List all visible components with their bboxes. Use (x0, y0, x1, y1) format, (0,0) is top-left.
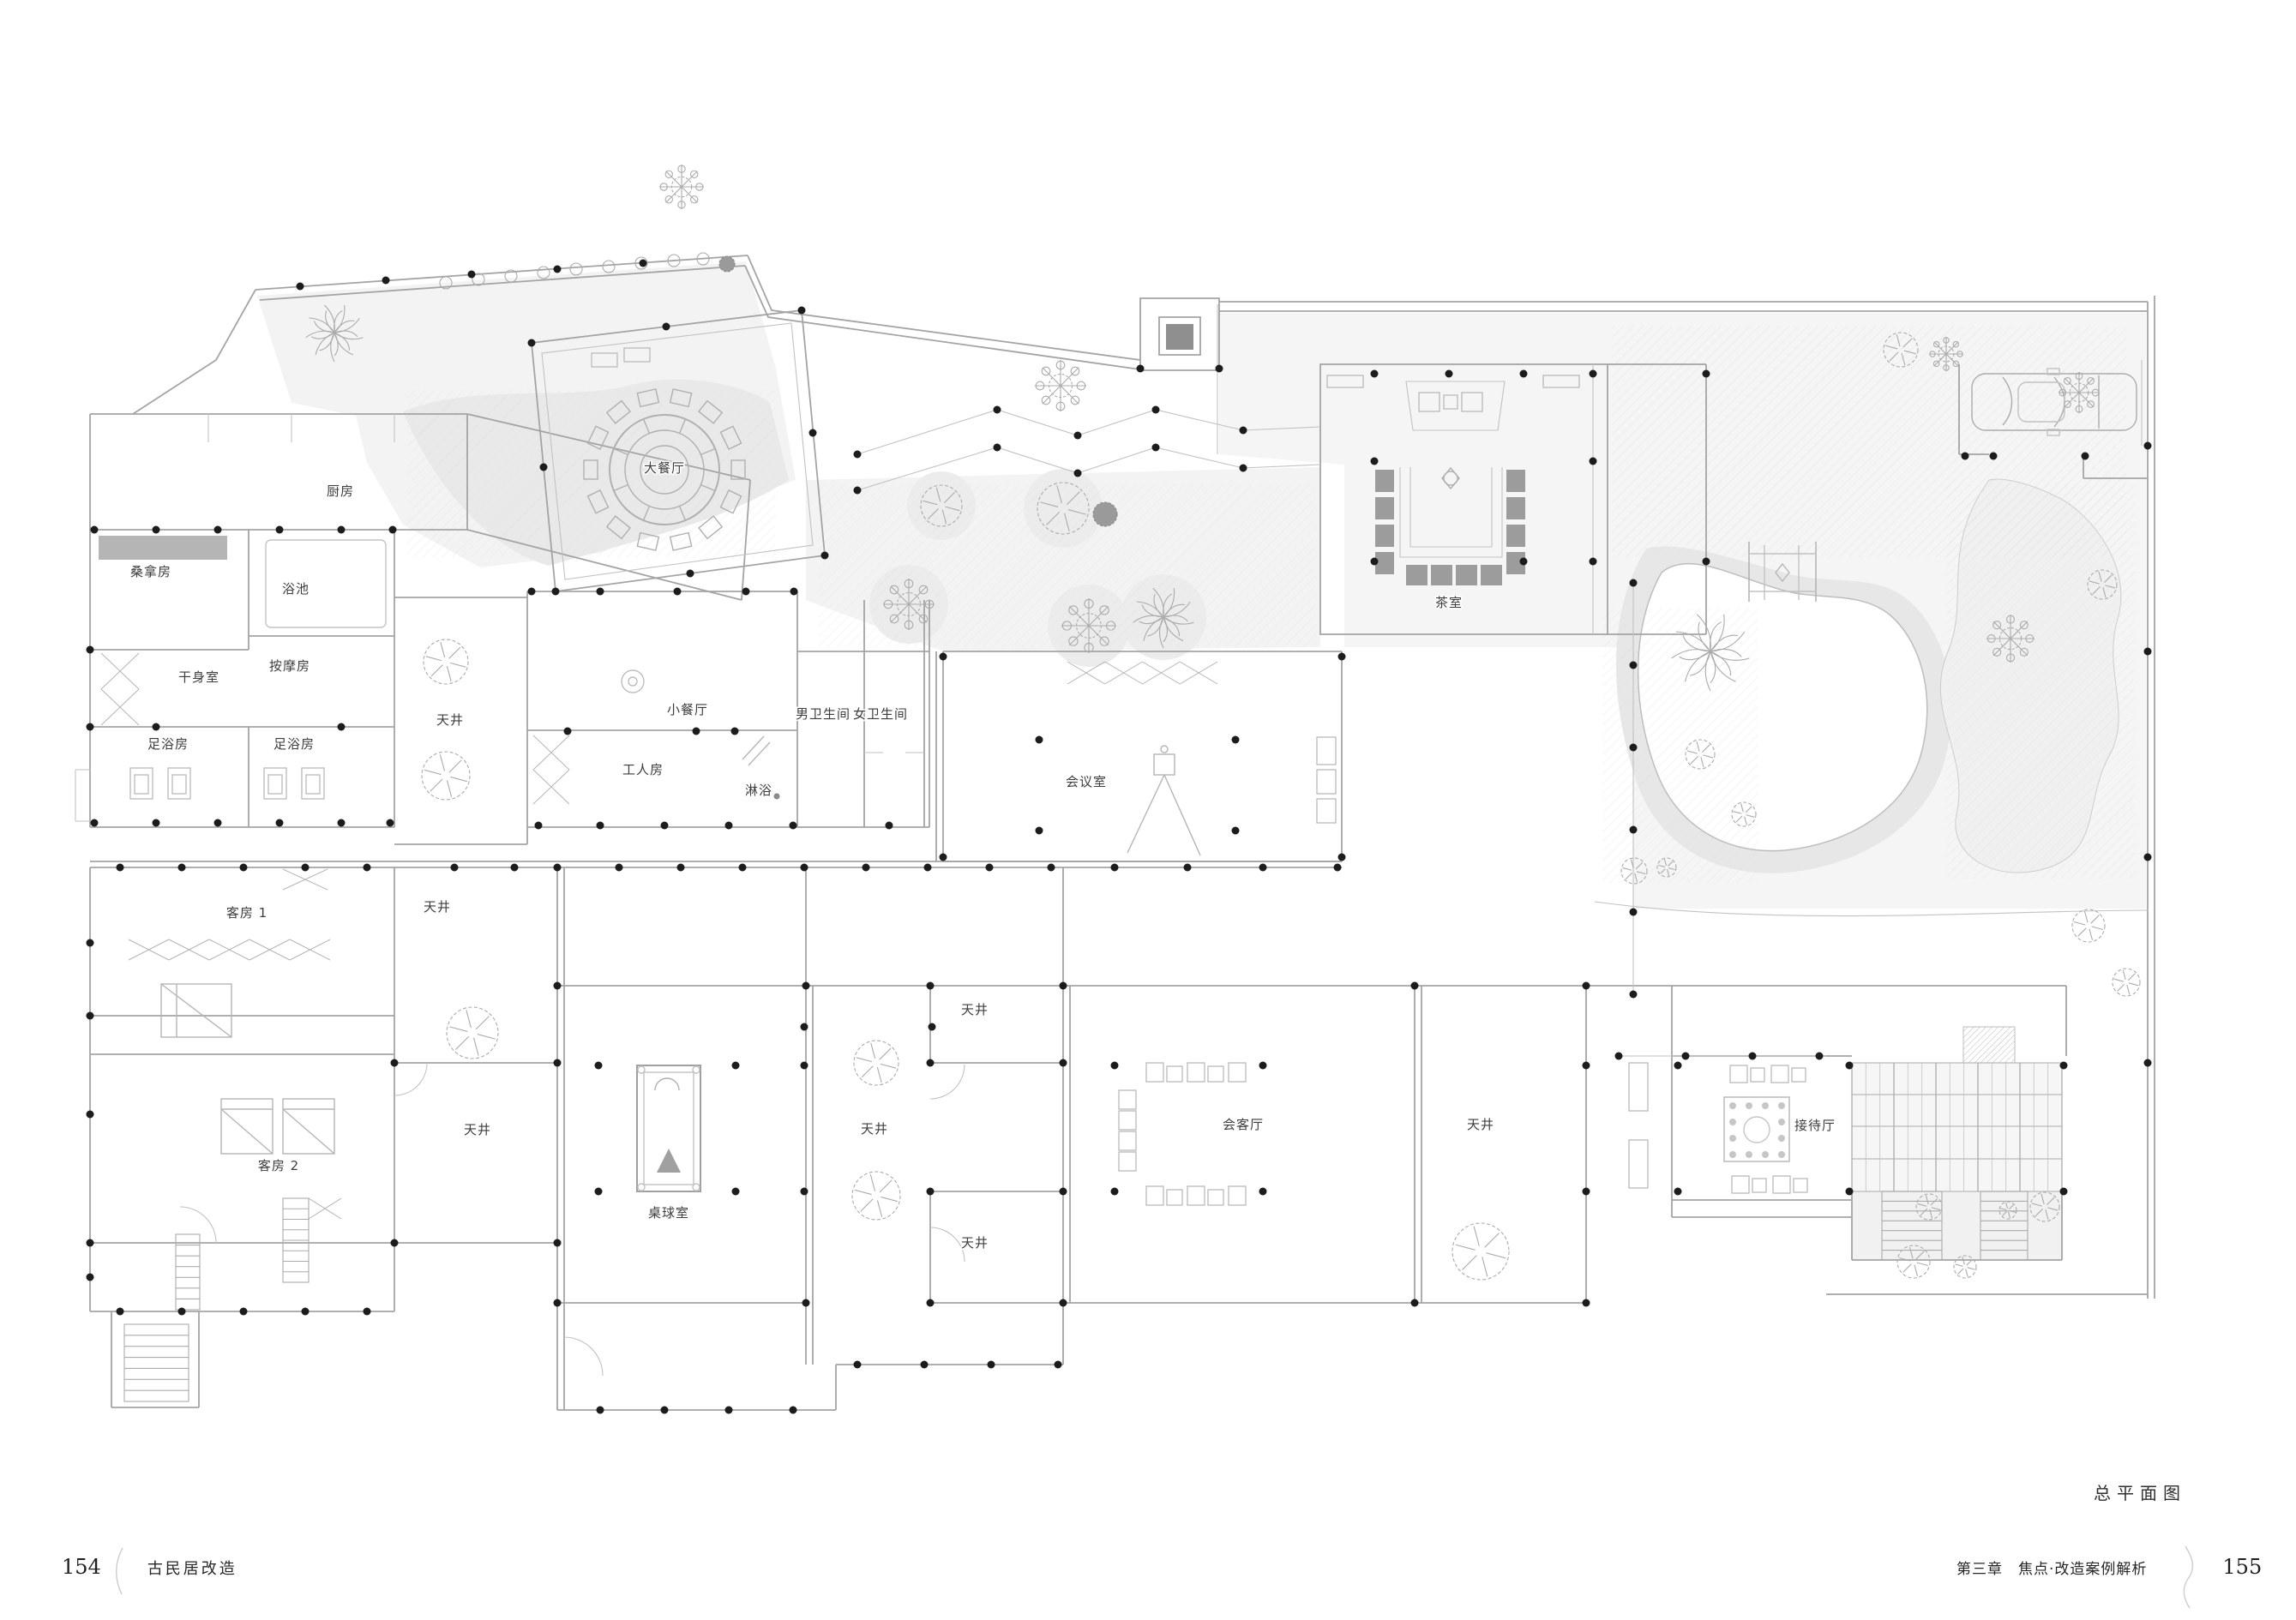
column-dot-icon (677, 864, 685, 872)
column-dot-icon (153, 723, 160, 731)
room-label: 男卫生间 (796, 706, 850, 722)
column-dot-icon (1060, 1299, 1067, 1307)
column-dot-icon (1583, 1188, 1590, 1196)
column-dot-icon (240, 864, 248, 872)
column-dot-icon (674, 588, 682, 596)
room-label: 足浴房 (147, 736, 189, 752)
column-dot-icon (564, 728, 572, 735)
column-dot-icon (554, 1299, 562, 1307)
column-dot-icon (1615, 1053, 1623, 1060)
column-dot-icon (511, 864, 519, 872)
column-dot-icon (87, 1239, 94, 1247)
room-label: 会客厅 (1223, 1117, 1264, 1132)
column-dot-icon (91, 819, 99, 827)
bed-icon (161, 984, 231, 1037)
column-dot-icon (1630, 579, 1638, 587)
tree-icon (422, 752, 470, 800)
column-dot-icon (554, 982, 562, 990)
column-dot-icon (87, 1012, 94, 1020)
column-dot-icon (927, 1299, 935, 1307)
column-dot-icon (1583, 1062, 1590, 1070)
column-dot-icon (1520, 558, 1528, 566)
column-dot-icon (927, 982, 935, 990)
column-dot-icon (732, 1062, 740, 1070)
room-label: 工人房 (622, 762, 664, 777)
column-dot-icon (117, 1308, 124, 1316)
column-dot-icon (732, 1188, 740, 1196)
column-dot-icon (468, 271, 476, 279)
tree-icon (2113, 969, 2140, 996)
column-dot-icon (854, 451, 862, 459)
column-dot-icon (640, 260, 647, 267)
room-label: 茶室 (1435, 595, 1463, 610)
column-dot-icon (994, 406, 1001, 414)
column-dot-icon (1111, 864, 1119, 872)
column-dot-icon (661, 822, 669, 830)
staircase-icon (283, 1198, 309, 1282)
tree-icon (1452, 1223, 1509, 1280)
column-dot-icon (1036, 827, 1043, 835)
column-dot-icon (87, 1274, 94, 1281)
column-dot-icon (725, 822, 733, 830)
column-dot-icon (802, 1299, 810, 1307)
column-dot-icon (1232, 736, 1240, 744)
book-title: 古民居改造 (147, 1557, 237, 1579)
column-dot-icon (988, 1361, 995, 1369)
column-dot-icon (338, 526, 346, 534)
chapter-title: 第三章 焦点·改造案例解析 (1956, 1557, 2147, 1578)
column-dot-icon (1411, 982, 1419, 990)
column-dot-icon (927, 1059, 935, 1067)
column-dot-icon (87, 646, 94, 654)
room-label: 天井 (961, 1002, 989, 1017)
column-dot-icon (1060, 1188, 1067, 1196)
column-dot-icon (528, 588, 536, 596)
column-dot-icon (1240, 465, 1247, 472)
column-dot-icon (1674, 1188, 1682, 1196)
column-dot-icon (798, 307, 806, 315)
column-dot-icon (661, 1407, 669, 1414)
column-dot-icon (994, 444, 1001, 452)
column-dot-icon (1334, 864, 1342, 872)
billiard-table-icon (637, 1065, 700, 1191)
column-dot-icon (1074, 432, 1082, 440)
column-dot-icon (1630, 662, 1638, 669)
column-dot-icon (302, 1308, 310, 1316)
staircase-icon (176, 1234, 200, 1310)
column-dot-icon (801, 1062, 808, 1070)
tree-icon (424, 639, 468, 684)
column-dot-icon (986, 864, 994, 872)
column-dot-icon (1240, 427, 1247, 435)
column-dot-icon (2144, 442, 2152, 450)
column-dot-icon (595, 1062, 603, 1070)
room-label: 足浴房 (273, 736, 315, 752)
column-dot-icon (801, 1023, 808, 1031)
column-dot-icon (731, 728, 739, 735)
column-dot-icon (924, 864, 932, 872)
room-label: 厨房 (327, 483, 354, 499)
room-label: 桑拿房 (130, 564, 171, 579)
column-dot-icon (338, 819, 346, 827)
column-dot-icon (1411, 1299, 1419, 1307)
column-dot-icon (540, 464, 548, 471)
folding-screen (129, 939, 330, 960)
column-dot-icon (1111, 1188, 1119, 1196)
column-dot-icon (391, 1239, 399, 1247)
room-label: 客房 1 (226, 905, 267, 921)
hatched-paving (1963, 1027, 2015, 1063)
column-dot-icon (178, 864, 186, 872)
flower-plant-icon (1929, 337, 1963, 371)
column-dot-icon (595, 1188, 603, 1196)
column-dot-icon (1846, 1062, 1854, 1070)
column-dot-icon (597, 1407, 604, 1414)
room-label: 会议室 (1066, 774, 1107, 789)
column-dot-icon (1036, 736, 1043, 744)
column-dot-icon (790, 588, 798, 596)
column-dot-icon (1520, 370, 1528, 378)
column-dot-icon (1184, 864, 1192, 872)
room-label: 天井 (861, 1121, 888, 1137)
column-dot-icon (1232, 827, 1240, 835)
column-dot-icon (214, 526, 222, 534)
column-dot-icon (2060, 1062, 2068, 1070)
column-dot-icon (1583, 982, 1590, 990)
column-dot-icon (821, 552, 829, 560)
column-dot-icon (302, 864, 310, 872)
column-dot-icon (616, 864, 623, 872)
bed-icon (221, 1099, 273, 1154)
column-dot-icon (1583, 1299, 1590, 1307)
column-dot-icon (802, 982, 810, 990)
column-dot-icon (391, 1059, 399, 1067)
column-dot-icon (1630, 909, 1638, 916)
column-dot-icon (87, 1111, 94, 1119)
column-dot-icon (1630, 744, 1638, 752)
column-dot-icon (1259, 864, 1267, 872)
column-dot-icon (554, 266, 562, 273)
column-dot-icon (153, 526, 160, 534)
column-dot-icon (554, 864, 562, 872)
column-dot-icon (1682, 1053, 1690, 1060)
column-dot-icon (451, 864, 459, 872)
room-label: 接待厅 (1794, 1118, 1836, 1133)
column-dot-icon (742, 588, 750, 596)
column-dot-icon (240, 1308, 248, 1316)
page-number-right: 155 (2222, 1555, 2262, 1579)
column-dot-icon (1137, 365, 1145, 373)
column-dot-icon (1152, 406, 1160, 414)
column-dot-icon (554, 1059, 562, 1067)
tree-icon (852, 1172, 900, 1220)
column-dot-icon (1111, 1062, 1119, 1070)
tree-icon (854, 1041, 899, 1085)
room-label: 桌球室 (648, 1205, 689, 1221)
room-label: 客房 2 (258, 1158, 299, 1173)
column-dot-icon (597, 588, 604, 596)
footer-right: 第三章 焦点·改造案例解析 155 (1956, 1555, 2262, 1579)
column-dot-icon (854, 1361, 862, 1369)
column-dot-icon (1371, 458, 1379, 465)
trellis-ground (1852, 1063, 2062, 1191)
column-dot-icon (1703, 558, 1710, 566)
room-label: 天井 (436, 712, 464, 728)
column-dot-icon (153, 819, 160, 827)
column-dot-icon (1703, 370, 1710, 378)
column-dot-icon (364, 1308, 371, 1316)
shrub-icon (1093, 502, 1117, 526)
room-label: 淋浴 (745, 783, 772, 798)
column-dot-icon (2144, 648, 2152, 656)
column-dot-icon (1749, 1053, 1757, 1060)
room-label: 干身室 (178, 669, 219, 685)
column-dot-icon (1674, 1062, 1682, 1070)
column-dot-icon (2082, 453, 2089, 460)
room-label: 天井 (1467, 1117, 1494, 1132)
folding-screen (101, 653, 139, 725)
column-dot-icon (927, 1188, 935, 1196)
column-dot-icon (528, 339, 536, 347)
column-dot-icon (663, 323, 670, 331)
column-dot-icon (1590, 558, 1597, 566)
room-label: 天井 (424, 899, 451, 915)
column-dot-icon (1216, 365, 1223, 373)
projector-tripod-icon (1127, 746, 1200, 855)
column-dot-icon (297, 283, 304, 291)
tree-icon (603, 261, 615, 273)
column-dot-icon (87, 723, 94, 731)
flower-plant-icon (2059, 372, 2100, 413)
tree-icon (447, 1007, 498, 1059)
column-dot-icon (382, 277, 390, 285)
column-dot-icon (1259, 1188, 1267, 1196)
column-dot-icon (1590, 458, 1597, 465)
room-label: 女卫生间 (853, 706, 908, 722)
column-dot-icon (364, 864, 371, 872)
column-dot-icon (597, 822, 604, 830)
column-dot-icon (1338, 854, 1346, 861)
column-dot-icon (178, 1308, 186, 1316)
tree-icon (2072, 909, 2105, 942)
column-dot-icon (801, 1188, 808, 1196)
sauna-bench (99, 536, 227, 560)
carpet-icon (1724, 1097, 1789, 1161)
column-dot-icon (2060, 1188, 2068, 1196)
room-label: 按摩房 (269, 658, 310, 674)
room-label: 天井 (961, 1235, 989, 1251)
column-dot-icon (739, 864, 747, 872)
folding-screen (283, 869, 328, 890)
column-dot-icon (1846, 1188, 1854, 1196)
column-dot-icon (1371, 558, 1379, 566)
column-dot-icon (940, 854, 947, 861)
plan-caption: 总平面图 (1998, 1479, 2186, 1504)
room-label: 小餐厅 (667, 702, 708, 717)
column-dot-icon (929, 1023, 936, 1031)
column-dot-icon (1962, 453, 1969, 460)
flower-plant-icon (883, 579, 935, 630)
column-dot-icon (790, 1407, 797, 1414)
column-dot-icon (276, 526, 284, 534)
bed-icon (283, 1099, 334, 1154)
room-label: 天井 (464, 1122, 491, 1137)
site-plan-drawing: 厨房桑拿房浴池干身室按摩房足浴房足浴房天井大餐厅小餐厅工人房淋浴男卫生间女卫生间… (0, 0, 2296, 1620)
column-dot-icon (1816, 1053, 1824, 1060)
folding-screen (309, 1198, 341, 1219)
small-round-table-icon (622, 670, 644, 693)
column-dot-icon (809, 429, 817, 437)
column-dot-icon (1152, 444, 1160, 452)
flower-plant-icon (1061, 598, 1116, 653)
column-dot-icon (921, 1361, 929, 1369)
column-dot-icon (1630, 826, 1638, 834)
column-dot-icon (790, 822, 797, 830)
flower-plant-icon (1035, 360, 1086, 411)
column-dot-icon (387, 819, 394, 827)
column-dot-icon (552, 588, 560, 596)
column-dot-icon (693, 728, 700, 735)
folding-screen (533, 735, 569, 804)
column-dot-icon (276, 819, 284, 827)
column-dot-icon (2144, 1059, 2152, 1067)
column-dot-icon (389, 526, 397, 534)
column-dot-icon (214, 819, 222, 827)
column-dot-icon (1060, 982, 1067, 990)
column-dot-icon (1446, 370, 1453, 378)
column-dot-icon (535, 822, 543, 830)
staircase-icon (124, 1324, 189, 1401)
column-dot-icon (725, 1407, 733, 1414)
well-pavilion (1166, 324, 1193, 350)
column-dot-icon (1060, 1059, 1067, 1067)
room-label: 浴池 (282, 581, 310, 597)
book-page-spread: 厨房桑拿房浴池干身室按摩房足浴房足浴房天井大餐厅小餐厅工人房淋浴男卫生间女卫生间… (0, 0, 2296, 1620)
flower-plant-icon (659, 165, 704, 209)
flower-plant-icon (1986, 615, 2035, 663)
column-dot-icon (554, 1239, 562, 1247)
shrub-icon (719, 256, 735, 272)
column-dot-icon (1371, 370, 1379, 378)
column-dot-icon (687, 570, 694, 578)
room-label: 大餐厅 (644, 460, 685, 476)
column-dot-icon (863, 864, 870, 872)
footer-left: 154 古民居改造 (62, 1555, 237, 1579)
footer-dividers (117, 1546, 2193, 1608)
column-dot-icon (1338, 653, 1346, 661)
column-dot-icon (854, 487, 862, 495)
column-dot-icon (1990, 453, 1998, 460)
paving (1852, 1191, 2062, 1260)
column-dot-icon (1259, 1062, 1267, 1070)
column-dot-icon (1048, 864, 1055, 872)
column-dot-icon (1630, 991, 1638, 999)
column-dot-icon (1590, 370, 1597, 378)
column-dot-icon (2144, 854, 2152, 861)
column-dot-icon (801, 864, 808, 872)
column-dot-icon (940, 653, 947, 661)
page-number-left: 154 (62, 1555, 101, 1579)
column-dot-icon (91, 526, 99, 534)
column-dot-icon (886, 822, 893, 830)
column-dot-icon (1055, 1361, 1062, 1369)
column-dot-icon (338, 723, 346, 731)
column-dot-icon (1074, 470, 1082, 477)
column-dot-icon (117, 864, 124, 872)
column-dot-icon (87, 939, 94, 947)
